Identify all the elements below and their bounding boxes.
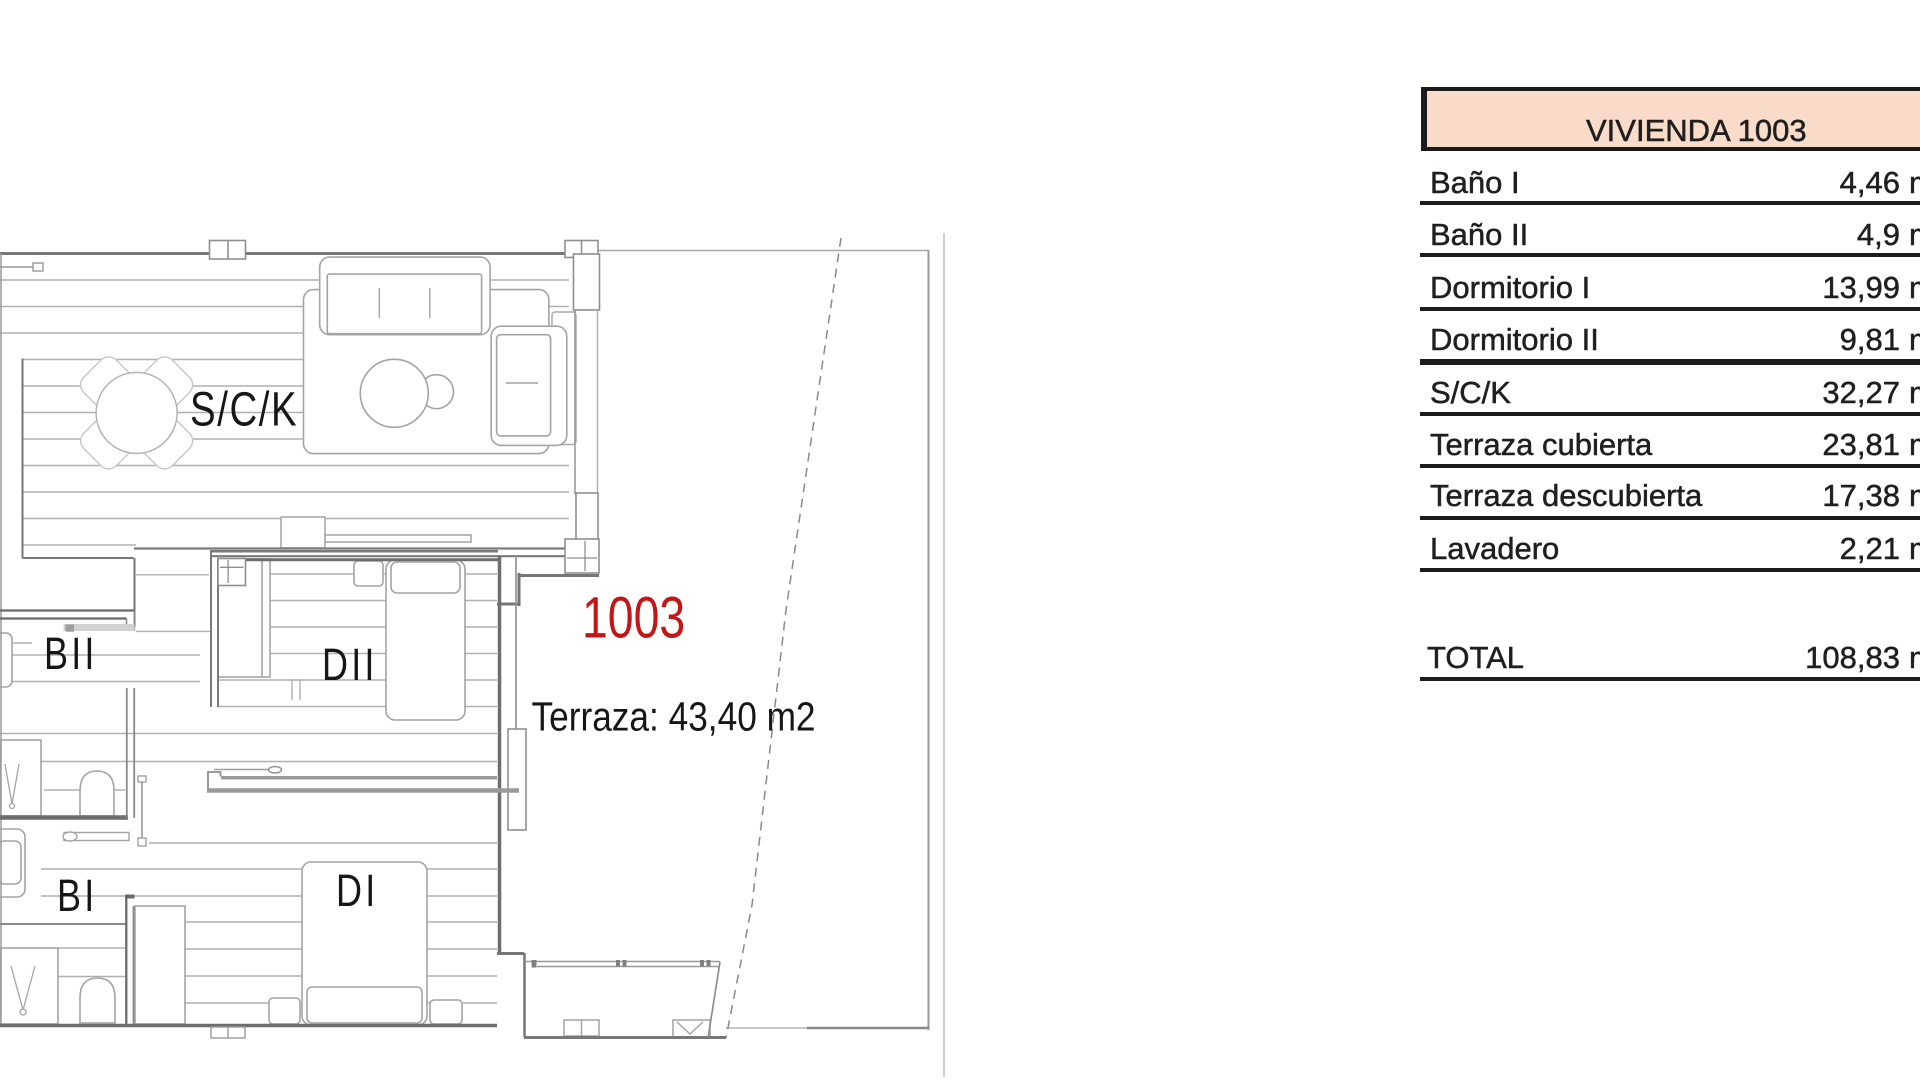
svg-text:DII: DII [322, 639, 378, 690]
svg-text:S/C/K: S/C/K [190, 384, 298, 437]
svg-text:BII: BII [44, 628, 98, 679]
svg-text:1003: 1003 [582, 586, 685, 651]
svg-text:BI: BI [57, 870, 97, 921]
svg-text:DI: DI [336, 865, 378, 916]
svg-text:Terraza: 43,40 m2: Terraza: 43,40 m2 [532, 694, 816, 740]
